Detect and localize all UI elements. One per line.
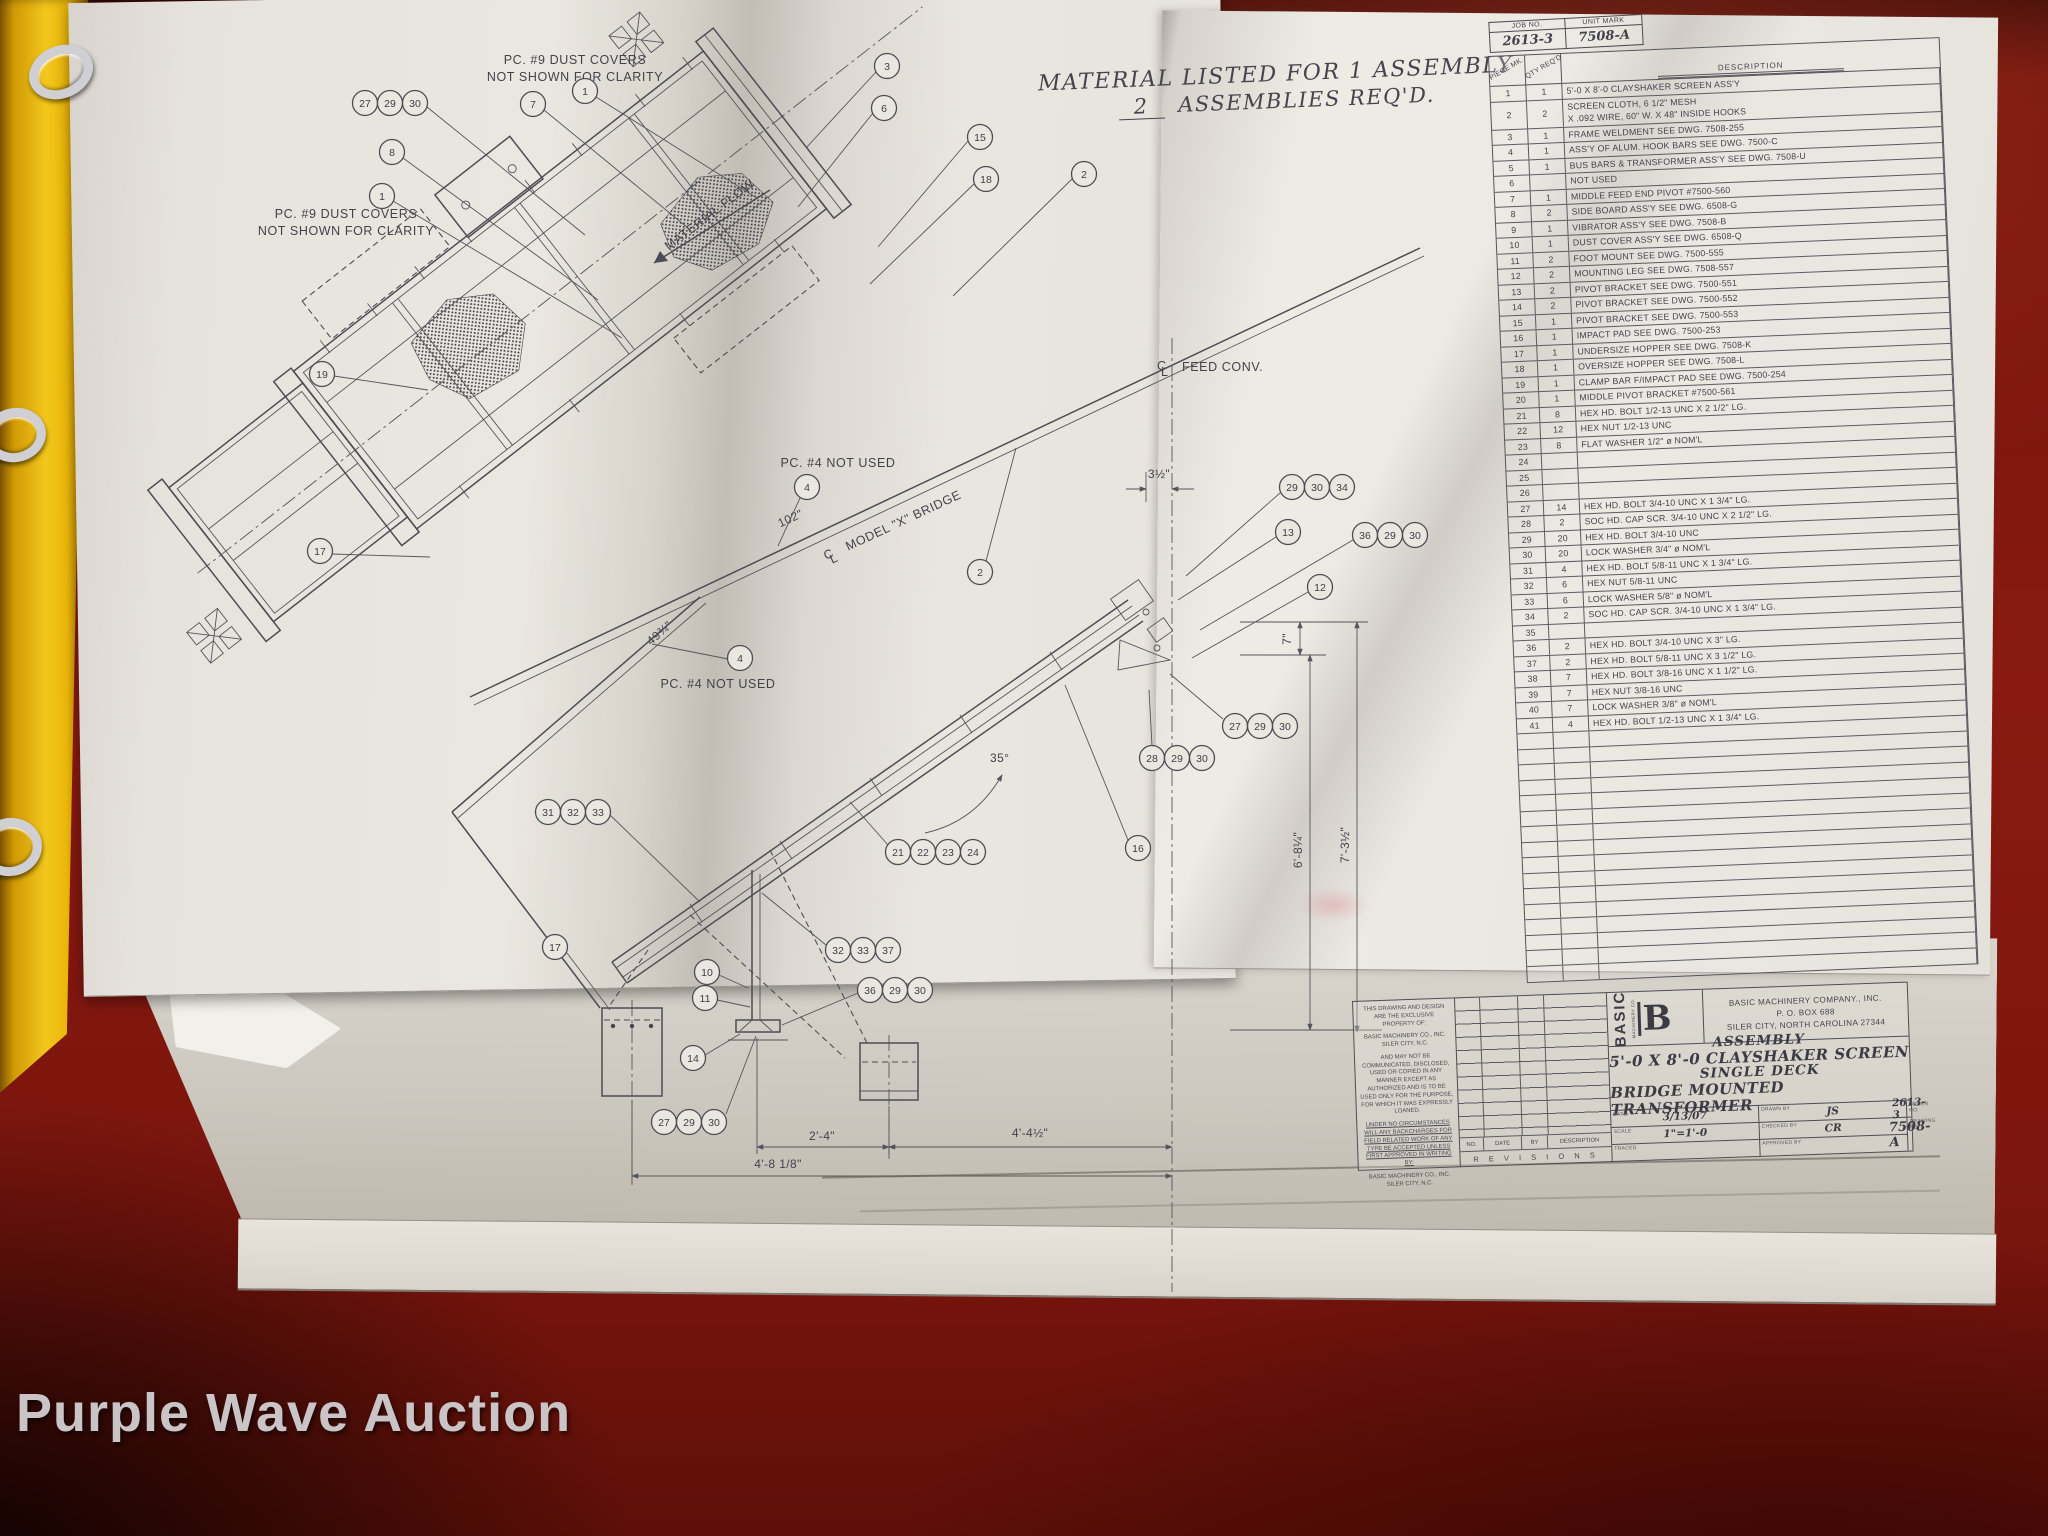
rev-date-label: DATE xyxy=(1484,1136,1522,1150)
rev-by-label: BY xyxy=(1522,1135,1548,1149)
qty-value: 2 xyxy=(1544,515,1581,531)
qty-value xyxy=(1560,886,1597,902)
qty-value xyxy=(1558,840,1595,856)
qty-value xyxy=(1542,468,1579,484)
approved-by-label: APPROVED BY xyxy=(1762,1139,1801,1146)
property-note: UNDER NO CIRCUMSTANCES WILL ANY BACKCHAR… xyxy=(1361,1120,1456,1170)
qty-value xyxy=(1555,762,1592,778)
title-block-right: BASIC MACHINERY CO. B BASIC MACHINERY CO… xyxy=(1607,983,1913,1161)
qty-value: 2 xyxy=(1534,267,1571,283)
piece-number: 2 xyxy=(1491,101,1528,129)
piece-number: 25 xyxy=(1506,470,1543,486)
piece-number: 41 xyxy=(1517,717,1554,733)
piece-number: 15 xyxy=(1500,315,1537,331)
piece-number: 32 xyxy=(1511,578,1548,594)
property-note: THIS DRAWING AND DESIGN ARE THE EXCLUSIV… xyxy=(1357,1004,1451,1031)
qty-value xyxy=(1530,174,1567,190)
qty-value xyxy=(1561,917,1598,933)
piece-number: 13 xyxy=(1499,284,1536,300)
qty-value: 1 xyxy=(1537,344,1574,360)
auction-watermark: Purple Wave Auction xyxy=(16,1382,571,1444)
revisions-block: NO. DATE BY DESCRIPTION R E V I S I O N … xyxy=(1455,993,1613,1166)
order-no-value: 2613-3 xyxy=(1907,1101,1912,1117)
property-note: BASIC MACHINERY CO., INC. SILER CITY, N.… xyxy=(1358,1032,1451,1051)
qty-value: 1 xyxy=(1532,220,1569,236)
assemblies-qty: 2 xyxy=(1118,94,1165,121)
qty-value: 4 xyxy=(1553,716,1590,732)
qty-value: 2 xyxy=(1535,282,1572,298)
logo-sub-text: MACHINERY CO. xyxy=(1630,999,1636,1039)
qty-value: 2 xyxy=(1527,99,1564,127)
qty-value: 6 xyxy=(1548,592,1585,608)
piece-header: PIECE MK. xyxy=(1489,57,1525,82)
qty-value: 1 xyxy=(1529,143,1566,159)
rev-no-label: NO. xyxy=(1460,1137,1484,1151)
piece-number: 12 xyxy=(1498,268,1535,284)
piece-number: 36 xyxy=(1514,640,1551,656)
piece-number: 28 xyxy=(1508,516,1545,532)
piece-number: 38 xyxy=(1515,671,1552,687)
piece-number: 22 xyxy=(1504,423,1541,439)
company-name: BASIC MACHINERY COMPANY., INC. xyxy=(1729,994,1882,1008)
unit-mark-value: 7508-A xyxy=(1566,25,1643,48)
piece-number: 20 xyxy=(1503,392,1540,408)
qty-value xyxy=(1559,871,1596,887)
photo-of-engineering-drawing: { "watermark": "Purple Wave Auction", "j… xyxy=(0,0,2048,1536)
qty-value: 1 xyxy=(1538,375,1575,391)
qty-header: QTY REQ'D xyxy=(1525,54,1563,81)
qty-value: 7 xyxy=(1551,669,1588,685)
piece-number: 19 xyxy=(1503,377,1540,393)
qty-value xyxy=(1557,824,1594,840)
qty-value: 7 xyxy=(1552,700,1589,716)
logo-vertical-text: BASIC xyxy=(1611,991,1630,1048)
piece-number: 21 xyxy=(1504,408,1541,424)
table-body: 1 1 5'-0 X 8'-0 CLAYSHAKER SCREEN ASS'Y … xyxy=(1490,68,1977,982)
qty-value: 8 xyxy=(1541,437,1578,453)
title-block-fields: DATE 3/13/07 SCALE 1"=1'-0 TRACED DRAWN … xyxy=(1611,1101,1913,1161)
piece-number: 34 xyxy=(1512,609,1549,625)
piece-number: 17 xyxy=(1501,346,1538,362)
qty-value: 1 xyxy=(1533,236,1570,252)
piece-number: 31 xyxy=(1510,563,1547,579)
qty-value xyxy=(1542,453,1579,469)
qty-value xyxy=(1556,793,1593,809)
qty-value: 2 xyxy=(1550,654,1587,670)
qty-value xyxy=(1557,809,1594,825)
drawing-title: ASSEMBLY 5'-0 X 8'-0 CLAYSHAKER SCREEN S… xyxy=(1609,1037,1911,1111)
piece-number xyxy=(1519,779,1556,795)
qty-value: 1 xyxy=(1538,360,1575,376)
piece-number xyxy=(1527,965,1564,982)
qty-value: 12 xyxy=(1540,422,1577,438)
qty-value: 1 xyxy=(1536,313,1573,329)
piece-number xyxy=(1523,872,1560,888)
qty-value: 20 xyxy=(1545,530,1582,546)
traced-label: TRACED xyxy=(1614,1145,1637,1152)
qty-value: 8 xyxy=(1540,406,1577,422)
company-po-box: P. O. BOX 688 xyxy=(1776,1007,1835,1018)
property-notice: THIS DRAWING AND DESIGN ARE THE EXCLUSIV… xyxy=(1353,998,1461,1169)
piece-number: 35 xyxy=(1513,624,1550,640)
property-note: BASIC MACHINERY CO., INC. SILER CITY, N.… xyxy=(1363,1171,1456,1190)
piece-number xyxy=(1519,764,1556,780)
drawing-no-field: DRAWING NO. 7508-A xyxy=(1907,1118,1912,1151)
piece-number: 39 xyxy=(1515,686,1552,702)
qty-value: 2 xyxy=(1535,298,1572,314)
qty-value: 6 xyxy=(1547,576,1584,592)
piece-header-cell: PIECE MK. xyxy=(1489,55,1526,85)
field-col-1: DATE 3/13/07 SCALE 1"=1'-0 TRACED xyxy=(1611,1106,1761,1161)
property-note: AND MAY NOT BE COMMUNICATED, DISCLOSED, … xyxy=(1359,1052,1454,1117)
piece-number xyxy=(1522,841,1559,857)
qty-value: 2 xyxy=(1548,607,1585,623)
piece-number: 26 xyxy=(1507,485,1544,501)
piece-number xyxy=(1525,919,1562,935)
qty-header-cell: QTY REQ'D xyxy=(1525,54,1562,84)
piece-number: 7 xyxy=(1495,191,1532,207)
piece-number: 16 xyxy=(1501,330,1538,346)
qty-value xyxy=(1562,933,1599,949)
piece-number xyxy=(1525,903,1562,919)
qty-value xyxy=(1549,623,1586,639)
piece-number: 9 xyxy=(1496,222,1533,238)
piece-number: 27 xyxy=(1508,501,1545,517)
piece-number: 8 xyxy=(1495,206,1532,222)
qty-value: 2 xyxy=(1531,205,1568,221)
piece-number: 37 xyxy=(1514,655,1551,671)
qty-value: 7 xyxy=(1551,685,1588,701)
qty-value: 1 xyxy=(1529,158,1566,174)
qty-value: 1 xyxy=(1531,189,1568,205)
bill-of-materials-table: PIECE MK. QTY REQ'D DESCRIPTION 1 1 5'-0… xyxy=(1488,37,1978,983)
qty-value: 1 xyxy=(1539,391,1576,407)
drawing-no-value: 7508-A xyxy=(1907,1118,1912,1151)
qty-value: 20 xyxy=(1546,546,1583,562)
piece-number: 33 xyxy=(1512,593,1549,609)
title-block: THIS DRAWING AND DESIGN ARE THE EXCLUSIV… xyxy=(1352,982,1914,1171)
piece-number: 14 xyxy=(1499,299,1536,315)
qty-value: 2 xyxy=(1533,251,1570,267)
piece-number xyxy=(1524,888,1561,904)
piece-number: 6 xyxy=(1494,175,1531,191)
piece-number: 18 xyxy=(1502,361,1539,377)
field-col-3: ORDER NO. 2613-3 DRAWING NO. 7508-A xyxy=(1907,1101,1913,1151)
qty-value: 1 xyxy=(1526,84,1563,100)
piece-number: 30 xyxy=(1510,547,1547,563)
revisions-grid-line xyxy=(1479,998,1485,1137)
piece-number: 11 xyxy=(1497,253,1534,269)
piece-number: 40 xyxy=(1516,702,1553,718)
piece-number xyxy=(1517,733,1554,749)
qty-value: 14 xyxy=(1544,499,1581,515)
piece-number xyxy=(1518,748,1555,764)
qty-value: 1 xyxy=(1537,329,1574,345)
field-col-2: DRAWN BY JS CHECKED BY CR APPROVED BY xyxy=(1759,1101,1909,1156)
order-no-field: ORDER NO. 2613-3 xyxy=(1907,1101,1912,1118)
piece-number: 1 xyxy=(1490,85,1527,101)
qty-value xyxy=(1562,948,1599,964)
qty-value xyxy=(1561,902,1598,918)
qty-value xyxy=(1553,731,1590,747)
piece-number: 10 xyxy=(1497,237,1534,253)
piece-number xyxy=(1521,826,1558,842)
pink-smudge xyxy=(1298,888,1368,922)
piece-number: 3 xyxy=(1492,129,1529,145)
piece-number: 24 xyxy=(1506,454,1543,470)
piece-number: 5 xyxy=(1493,160,1530,176)
piece-number xyxy=(1526,934,1563,950)
piece-number: 4 xyxy=(1493,144,1530,160)
piece-number xyxy=(1520,795,1557,811)
qty-value xyxy=(1559,855,1596,871)
qty-value xyxy=(1555,778,1592,794)
qty-value: 2 xyxy=(1550,638,1587,654)
drawing-sheet-left xyxy=(68,0,1235,997)
qty-value xyxy=(1554,747,1591,763)
revisions-grid-line xyxy=(1543,995,1549,1134)
qty-value: 4 xyxy=(1546,561,1583,577)
piece-number: 29 xyxy=(1509,532,1546,548)
logo-b-icon: B xyxy=(1637,1000,1672,1035)
qty-value xyxy=(1543,484,1580,500)
piece-number: 23 xyxy=(1505,439,1542,455)
piece-number xyxy=(1523,857,1560,873)
revisions-grid xyxy=(1455,993,1611,1137)
company-city: SILER CITY, NORTH CAROLINA 27344 xyxy=(1727,1017,1886,1032)
piece-number xyxy=(1527,950,1564,966)
revisions-grid-line xyxy=(1517,996,1523,1135)
basic-logo: BASIC MACHINERY CO. B xyxy=(1607,990,1705,1046)
paper-stack-bottom-edge xyxy=(238,1218,1997,1305)
qty-value: 1 xyxy=(1528,127,1565,143)
qty-value xyxy=(1563,964,1600,981)
job-no-value: 2613-3 xyxy=(1490,29,1567,52)
piece-number xyxy=(1521,810,1558,826)
